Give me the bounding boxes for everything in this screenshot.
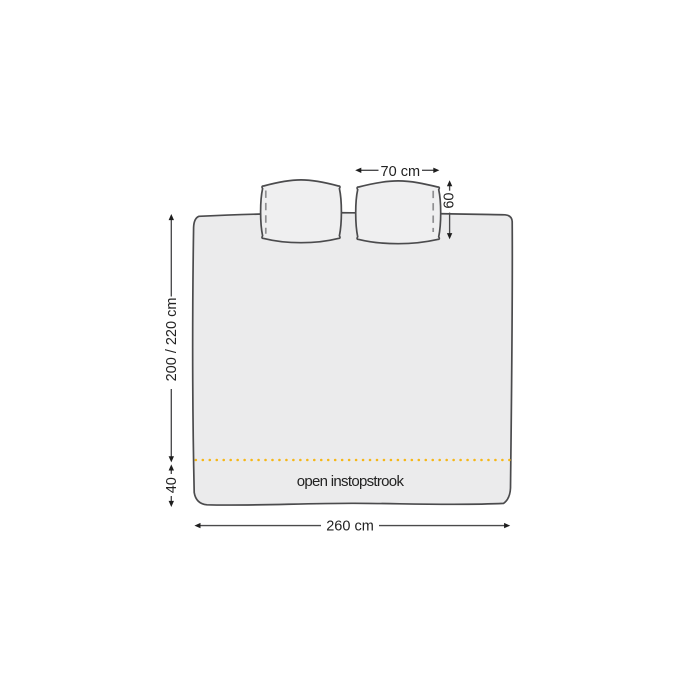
svg-text:60: 60 — [442, 193, 458, 209]
svg-text:200 / 220 cm: 200 / 220 cm — [164, 298, 180, 382]
svg-text:40: 40 — [164, 477, 180, 493]
svg-text:open instopstrook: open instopstrook — [297, 473, 405, 490]
svg-text:260 cm: 260 cm — [326, 519, 374, 535]
svg-text:70 cm: 70 cm — [381, 164, 421, 180]
